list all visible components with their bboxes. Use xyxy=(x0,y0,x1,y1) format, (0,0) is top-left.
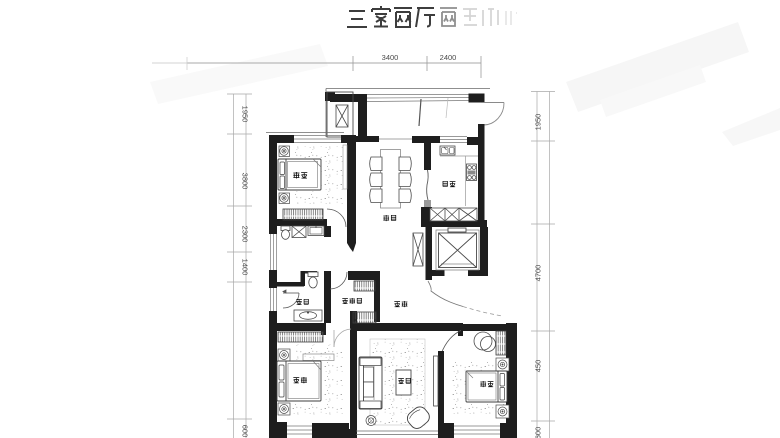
svg-text:600: 600 xyxy=(534,427,543,438)
svg-text:1950: 1950 xyxy=(241,106,250,123)
svg-text:2300: 2300 xyxy=(241,226,250,243)
svg-text:1950: 1950 xyxy=(534,114,543,131)
svg-text:3800: 3800 xyxy=(241,173,250,190)
svg-text:1400: 1400 xyxy=(241,259,250,276)
svg-text:450: 450 xyxy=(534,360,543,373)
svg-text:600: 600 xyxy=(241,425,250,438)
svg-text:3400: 3400 xyxy=(382,53,399,62)
svg-text:4700: 4700 xyxy=(534,265,543,282)
svg-text:2400: 2400 xyxy=(440,53,457,62)
